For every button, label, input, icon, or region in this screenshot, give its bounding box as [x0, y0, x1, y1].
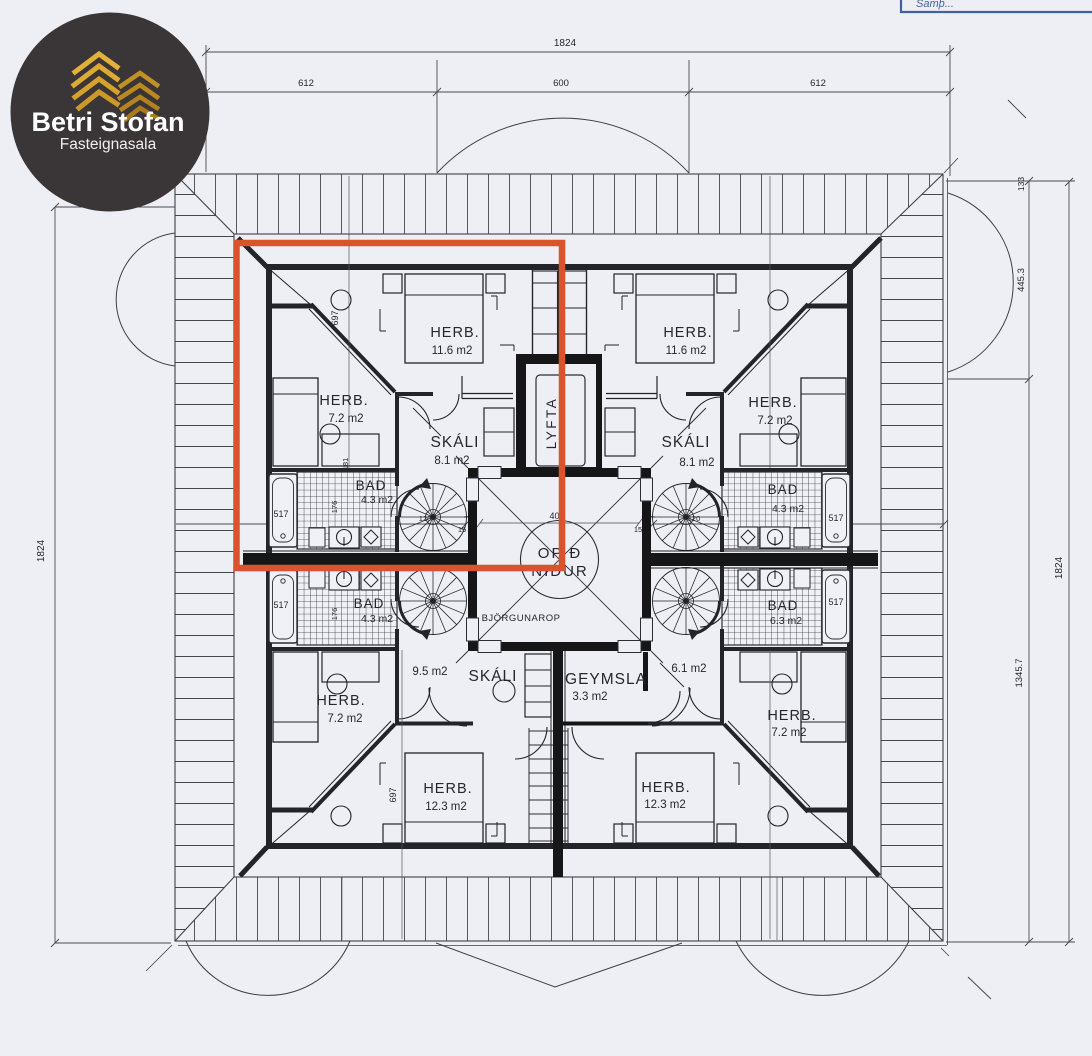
- svg-text:BAD: BAD: [356, 478, 387, 493]
- svg-text:HERB.: HERB.: [319, 393, 368, 409]
- svg-text:LYFTA: LYFTA: [544, 397, 559, 450]
- svg-text:BAD: BAD: [768, 482, 799, 497]
- svg-text:8.1 m2: 8.1 m2: [679, 457, 714, 469]
- svg-text:BAD: BAD: [354, 596, 385, 611]
- svg-text:HERB.: HERB.: [430, 325, 479, 341]
- svg-text:9.5 m2: 9.5 m2: [412, 666, 447, 678]
- svg-text:176: 176: [330, 608, 339, 621]
- svg-text:4.3 m2: 4.3 m2: [361, 613, 393, 625]
- svg-text:1824: 1824: [36, 539, 47, 562]
- svg-text:HERB.: HERB.: [748, 395, 797, 411]
- svg-text:517: 517: [273, 600, 288, 610]
- svg-text:517: 517: [273, 509, 288, 519]
- svg-text:HERB.: HERB.: [316, 693, 365, 709]
- svg-text:4.3 m2: 4.3 m2: [361, 494, 393, 506]
- svg-text:1824: 1824: [1054, 556, 1065, 579]
- svg-text:HERB.: HERB.: [641, 780, 690, 796]
- svg-text:3.3 m2: 3.3 m2: [572, 691, 607, 703]
- svg-text:7.2 m2: 7.2 m2: [771, 727, 806, 739]
- svg-text:15: 15: [634, 525, 642, 534]
- svg-text:697: 697: [388, 787, 398, 802]
- svg-text:Samþ...: Samþ...: [916, 0, 954, 10]
- svg-text:4.3 m2: 4.3 m2: [772, 503, 804, 515]
- svg-text:BJÖRGUNAROP: BJÖRGUNAROP: [482, 613, 561, 624]
- svg-text:1824: 1824: [554, 38, 577, 49]
- svg-text:517: 517: [828, 513, 843, 523]
- svg-text:1345.7: 1345.7: [1014, 658, 1025, 687]
- svg-text:6.3 m2: 6.3 m2: [770, 615, 802, 627]
- svg-text:11.6 m2: 11.6 m2: [432, 345, 473, 357]
- svg-text:612: 612: [810, 78, 826, 89]
- svg-text:445.3: 445.3: [1016, 268, 1027, 292]
- svg-text:15: 15: [458, 525, 466, 534]
- svg-text:133: 133: [1016, 177, 1026, 191]
- svg-text:7.2 m2: 7.2 m2: [757, 415, 792, 427]
- svg-text:6.1 m2: 6.1 m2: [671, 663, 706, 675]
- svg-text:8.1 m2: 8.1 m2: [434, 455, 469, 467]
- svg-text:HERB.: HERB.: [767, 708, 816, 724]
- svg-text:7.2 m2: 7.2 m2: [327, 713, 362, 725]
- svg-text:517: 517: [828, 597, 843, 607]
- svg-text:697: 697: [330, 310, 340, 325]
- svg-text:12.3 m2: 12.3 m2: [644, 799, 686, 811]
- svg-text:Fasteignasala: Fasteignasala: [60, 136, 157, 153]
- svg-text:181: 181: [341, 458, 350, 471]
- svg-text:HERB.: HERB.: [423, 781, 472, 797]
- svg-text:GEYMSLA: GEYMSLA: [565, 671, 647, 688]
- svg-text:Betri Stofan: Betri Stofan: [31, 107, 184, 137]
- svg-text:11.6 m2: 11.6 m2: [666, 345, 707, 357]
- svg-text:612: 612: [298, 78, 314, 89]
- svg-text:SKÁLI: SKÁLI: [662, 434, 711, 451]
- svg-text:BAD: BAD: [768, 598, 799, 613]
- svg-text:12.3 m2: 12.3 m2: [425, 801, 467, 813]
- svg-text:600: 600: [553, 78, 569, 89]
- svg-text:SKÁLI: SKÁLI: [431, 434, 480, 451]
- svg-text:7.2 m2: 7.2 m2: [328, 413, 363, 425]
- svg-text:120: 120: [688, 514, 701, 523]
- svg-text:120: 120: [419, 514, 432, 523]
- svg-text:176: 176: [330, 501, 339, 514]
- svg-text:HERB.: HERB.: [663, 325, 712, 341]
